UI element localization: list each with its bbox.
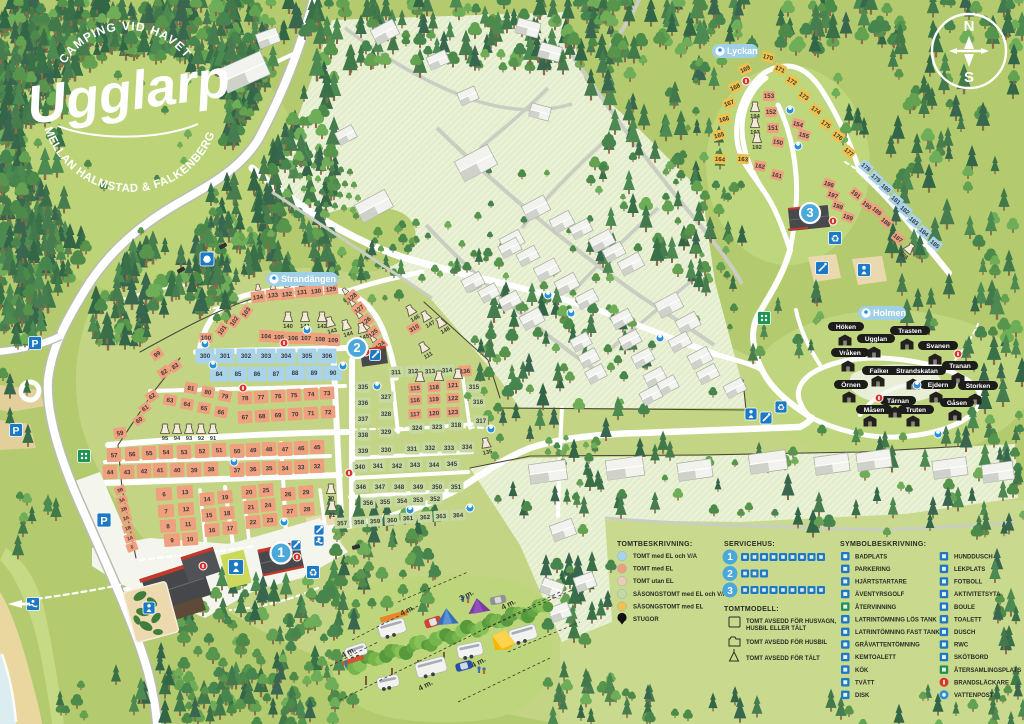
svg-text:♻: ♻ — [831, 234, 840, 245]
svg-text:94: 94 — [174, 436, 181, 442]
svg-text:76: 76 — [274, 393, 282, 400]
svg-text:35: 35 — [266, 465, 274, 472]
svg-text:33: 33 — [298, 464, 306, 471]
svg-text:21: 21 — [247, 504, 255, 511]
svg-text:317: 317 — [476, 418, 487, 425]
svg-text:53: 53 — [181, 449, 189, 456]
svg-text:122: 122 — [448, 395, 459, 403]
svg-text:♻: ♻ — [309, 568, 318, 579]
svg-text:10: 10 — [186, 536, 194, 543]
svg-text:23: 23 — [266, 517, 274, 524]
svg-text:Vråken: Vråken — [839, 349, 861, 357]
svg-text:78: 78 — [241, 395, 249, 402]
svg-text:329: 329 — [381, 429, 392, 436]
svg-text:49: 49 — [250, 447, 258, 454]
svg-text:343: 343 — [410, 462, 421, 469]
svg-text:338: 338 — [358, 432, 369, 439]
svg-text:TOALETT: TOALETT — [954, 617, 982, 623]
svg-text:86: 86 — [254, 371, 261, 378]
svg-text:358: 358 — [354, 519, 365, 527]
svg-text:54: 54 — [163, 449, 171, 456]
svg-text:331: 331 — [407, 446, 418, 453]
svg-text:119: 119 — [429, 396, 440, 404]
svg-text:Falken: Falken — [870, 368, 891, 375]
svg-text:2: 2 — [353, 340, 360, 355]
svg-text:AKTIVITETSYTA: AKTIVITETSYTA — [954, 592, 1001, 598]
svg-text:BOULE: BOULE — [954, 605, 975, 611]
svg-text:3: 3 — [806, 205, 813, 220]
svg-text:45: 45 — [314, 444, 322, 451]
svg-text:14: 14 — [203, 496, 211, 503]
svg-text:360: 360 — [387, 517, 398, 525]
svg-text:Tärnan: Tärnan — [887, 398, 909, 405]
svg-text:1: 1 — [277, 544, 285, 560]
svg-text:56: 56 — [129, 451, 137, 458]
svg-text:323: 323 — [432, 424, 443, 431]
svg-text:332: 332 — [425, 445, 436, 452]
svg-text:Trasten: Trasten — [898, 328, 921, 335]
svg-text:70: 70 — [291, 411, 299, 418]
svg-text:346: 346 — [356, 484, 367, 491]
svg-text:342: 342 — [392, 463, 403, 470]
svg-text:TOMTBESKRIVNING:: TOMTBESKRIVNING: — [617, 541, 692, 548]
svg-text:95: 95 — [162, 436, 169, 442]
svg-text:2: 2 — [727, 569, 733, 580]
svg-text:16: 16 — [208, 527, 216, 534]
svg-text:P: P — [100, 516, 108, 528]
svg-text:73: 73 — [323, 390, 331, 397]
svg-text:301: 301 — [220, 353, 231, 360]
svg-text:26: 26 — [284, 491, 292, 498]
svg-text:DISK: DISK — [855, 693, 870, 699]
svg-text:FOTBOLL: FOTBOLL — [954, 580, 983, 586]
svg-text:335: 335 — [358, 384, 369, 391]
svg-text:115: 115 — [410, 385, 421, 393]
svg-text:142: 142 — [317, 324, 327, 330]
svg-text:152: 152 — [766, 109, 777, 116]
svg-text:KEMTOALETT: KEMTOALETT — [855, 655, 896, 661]
svg-text:330: 330 — [381, 447, 392, 454]
svg-text:46: 46 — [298, 445, 306, 452]
svg-text:♻: ♻ — [777, 403, 785, 413]
svg-text:118: 118 — [429, 384, 440, 392]
svg-text:355: 355 — [380, 499, 391, 506]
svg-text:57: 57 — [111, 452, 119, 459]
svg-text:P: P — [32, 339, 39, 350]
svg-text:LATRINTÖMNING FAST TANK: LATRINTÖMNING FAST TANK — [855, 629, 940, 636]
svg-text:337: 337 — [358, 416, 369, 423]
svg-text:345: 345 — [447, 461, 458, 468]
svg-text:34: 34 — [282, 465, 290, 472]
svg-text:LEKPLATS: LEKPLATS — [954, 567, 985, 573]
svg-text:BRANDSLÄCKARE: BRANDSLÄCKARE — [954, 679, 1009, 686]
svg-text:13: 13 — [181, 489, 189, 496]
svg-text:306: 306 — [322, 353, 333, 360]
svg-text:ÅTERSAMLINGSPLATS: ÅTERSAMLINGSPLATS — [954, 667, 1021, 674]
svg-text:41: 41 — [157, 467, 165, 474]
svg-text:SÄSONGSTOMT med EL och V/A: SÄSONGSTOMT med EL och V/A — [633, 591, 728, 598]
svg-text:12: 12 — [182, 506, 190, 513]
svg-text:28: 28 — [303, 506, 311, 513]
svg-text:Tranan: Tranan — [949, 363, 971, 370]
svg-text:47: 47 — [282, 446, 290, 453]
svg-text:305: 305 — [302, 353, 313, 360]
svg-text:106: 106 — [288, 335, 299, 342]
svg-text:N: N — [964, 18, 975, 35]
svg-text:107: 107 — [301, 335, 312, 342]
svg-text:20: 20 — [245, 489, 253, 496]
svg-text:29: 29 — [302, 489, 310, 496]
svg-text:164: 164 — [715, 156, 726, 164]
svg-text:SÄSONGSTOMT med EL: SÄSONGSTOMT med EL — [633, 603, 704, 610]
svg-text:74: 74 — [307, 391, 315, 398]
svg-text:88: 88 — [292, 370, 299, 377]
svg-text:93: 93 — [186, 436, 193, 442]
svg-text:87: 87 — [273, 371, 280, 378]
svg-text:48: 48 — [266, 446, 274, 453]
svg-text:354: 354 — [397, 498, 408, 505]
svg-text:32: 32 — [314, 463, 322, 470]
svg-text:Strandskatan: Strandskatan — [896, 368, 938, 375]
svg-text:TOMT utan EL: TOMT utan EL — [633, 579, 674, 585]
svg-text:313: 313 — [425, 368, 436, 376]
svg-text:303: 303 — [261, 353, 272, 360]
svg-text:344: 344 — [429, 462, 440, 469]
svg-text:SKÖTBORD: SKÖTBORD — [954, 654, 989, 661]
svg-text:341: 341 — [373, 463, 384, 470]
svg-text:S: S — [964, 69, 974, 86]
svg-text:90: 90 — [330, 370, 337, 377]
svg-text:19: 19 — [221, 494, 229, 501]
svg-text:92: 92 — [198, 436, 204, 442]
svg-text:LATRINTÖMNING LÖS TANK: LATRINTÖMNING LÖS TANK — [855, 616, 937, 623]
svg-text:Truten: Truten — [906, 407, 926, 414]
svg-text:89: 89 — [311, 370, 318, 377]
svg-text:TOMT AVSEDD FÖR TÄLT: TOMT AVSEDD FÖR TÄLT — [746, 655, 820, 662]
svg-text:327: 327 — [381, 394, 392, 401]
svg-text:39: 39 — [191, 467, 199, 474]
svg-text:Örnen: Örnen — [841, 380, 860, 389]
svg-text:85: 85 — [235, 371, 242, 378]
svg-text:108: 108 — [315, 336, 326, 343]
svg-text:TOMT AVSEDD FÖR HUSBIL: TOMT AVSEDD FÖR HUSBIL — [746, 639, 828, 646]
svg-text:192: 192 — [752, 145, 762, 151]
svg-text:37: 37 — [234, 467, 242, 474]
svg-text:340: 340 — [355, 464, 366, 471]
svg-text:22: 22 — [249, 519, 257, 526]
svg-text:353: 353 — [413, 497, 424, 504]
svg-text:362: 362 — [420, 514, 431, 522]
svg-text:151: 151 — [768, 125, 779, 132]
svg-text:356: 356 — [363, 500, 374, 507]
svg-text:BADPLATS: BADPLATS — [855, 554, 887, 560]
svg-text:300: 300 — [200, 353, 211, 360]
svg-text:STUGOR: STUGOR — [633, 617, 659, 623]
svg-text:DUSCH: DUSCH — [954, 630, 975, 636]
svg-text:72: 72 — [324, 409, 332, 416]
svg-text:Strandängen: Strandängen — [281, 274, 336, 284]
svg-text:Svanen: Svanen — [926, 343, 949, 350]
svg-text:109: 109 — [328, 337, 339, 344]
svg-text:69: 69 — [274, 412, 282, 419]
svg-text:TOMT med EL och V/A: TOMT med EL och V/A — [633, 554, 698, 560]
svg-text:44: 44 — [107, 469, 115, 476]
svg-text:42: 42 — [141, 468, 149, 475]
svg-text:Höken: Höken — [836, 324, 856, 331]
svg-text:91: 91 — [210, 436, 217, 442]
svg-text:311: 311 — [391, 369, 402, 377]
svg-text:Gåsen: Gåsen — [947, 399, 967, 407]
svg-text:51: 51 — [216, 447, 224, 454]
svg-text:3: 3 — [727, 586, 733, 597]
svg-text:15: 15 — [205, 512, 213, 519]
svg-text:352: 352 — [430, 496, 441, 503]
svg-text:153: 153 — [764, 93, 775, 100]
svg-text:43: 43 — [124, 469, 132, 476]
svg-text:359: 359 — [370, 518, 381, 526]
svg-text:SERVICEHUS:: SERVICEHUS: — [724, 541, 775, 548]
svg-text:104: 104 — [261, 333, 272, 340]
svg-text:120: 120 — [429, 410, 440, 418]
svg-text:77: 77 — [257, 394, 265, 401]
svg-text:71: 71 — [307, 410, 315, 417]
svg-text:TOMT med EL: TOMT med EL — [633, 567, 674, 573]
svg-text:Ugglan: Ugglan — [865, 336, 887, 343]
svg-text:ÅTERVINNING: ÅTERVINNING — [855, 604, 897, 611]
svg-text:18: 18 — [223, 510, 231, 517]
svg-text:55: 55 — [146, 450, 154, 457]
svg-text:351: 351 — [451, 484, 462, 491]
svg-text:75: 75 — [290, 392, 298, 399]
svg-text:315: 315 — [469, 384, 480, 391]
svg-text:68: 68 — [258, 413, 266, 420]
svg-text:132: 132 — [282, 291, 293, 299]
svg-text:67: 67 — [241, 414, 249, 421]
svg-text:11: 11 — [185, 521, 193, 528]
svg-text:363: 363 — [436, 513, 447, 521]
svg-text:304: 304 — [281, 353, 292, 360]
svg-text:361: 361 — [403, 515, 414, 523]
svg-text:HUNDDUSCH: HUNDDUSCH — [954, 554, 993, 560]
svg-text:Ejdern: Ejdern — [928, 382, 949, 389]
svg-text:339: 339 — [358, 448, 369, 455]
svg-text:40: 40 — [174, 467, 182, 474]
svg-text:364: 364 — [453, 512, 464, 520]
svg-text:129: 129 — [326, 286, 337, 294]
svg-text:36: 36 — [250, 466, 258, 473]
svg-text:130: 130 — [311, 288, 322, 296]
svg-text:133: 133 — [268, 292, 279, 300]
svg-text:Lyckan: Lyckan — [727, 46, 758, 56]
svg-text:Storken: Storken — [966, 383, 991, 390]
svg-text:116: 116 — [410, 397, 421, 405]
svg-text:TVÄTT: TVÄTT — [855, 679, 875, 686]
svg-text:SYMBOLBESKRIVNING:: SYMBOLBESKRIVNING: — [840, 541, 926, 548]
svg-text:TOMT AVSEDD FÖR HUSVAGN,: TOMT AVSEDD FÖR HUSVAGN, — [746, 618, 836, 625]
svg-text:318: 318 — [451, 422, 462, 429]
svg-text:163: 163 — [738, 156, 749, 164]
svg-text:38: 38 — [208, 466, 216, 473]
svg-text:52: 52 — [199, 448, 207, 455]
svg-text:84: 84 — [216, 371, 223, 378]
svg-text:P: P — [13, 426, 20, 437]
svg-text:24: 24 — [264, 502, 272, 509]
svg-text:131: 131 — [297, 289, 308, 297]
svg-text:123: 123 — [448, 409, 459, 417]
svg-text:HUSBIL ELLER TÄLT: HUSBIL ELLER TÄLT — [746, 625, 806, 632]
svg-text:328: 328 — [381, 411, 392, 418]
svg-text:ÄVENTYRSGOLF: ÄVENTYRSGOLF — [855, 591, 905, 598]
svg-text:50: 50 — [234, 448, 242, 455]
svg-text:PARKERING: PARKERING — [855, 567, 891, 573]
svg-text:302: 302 — [241, 353, 252, 360]
svg-text:336: 336 — [358, 400, 369, 407]
svg-text:333: 333 — [444, 445, 455, 452]
svg-text:RWC: RWC — [954, 643, 969, 649]
svg-text:347: 347 — [375, 484, 386, 491]
svg-text:25: 25 — [262, 487, 270, 494]
svg-text:350: 350 — [432, 484, 443, 491]
svg-text:Måsen: Måsen — [864, 406, 885, 414]
svg-text:324: 324 — [412, 425, 423, 432]
svg-text:GRÅVATTENTÖMNING: GRÅVATTENTÖMNING — [855, 642, 920, 649]
svg-text:117: 117 — [410, 411, 421, 419]
svg-text:349: 349 — [413, 484, 424, 491]
svg-text:VATTENPOST: VATTENPOST — [954, 693, 994, 699]
svg-text:316: 316 — [473, 399, 484, 406]
svg-text:334: 334 — [462, 444, 473, 451]
svg-text:1: 1 — [727, 552, 733, 563]
svg-text:HJÄRTSTARTARE: HJÄRTSTARTARE — [855, 579, 907, 586]
svg-text:140: 140 — [283, 324, 293, 330]
svg-text:121: 121 — [448, 382, 459, 390]
svg-text:348: 348 — [394, 484, 405, 491]
svg-text:Holmen: Holmen — [873, 308, 906, 318]
svg-text:314: 314 — [442, 367, 453, 375]
svg-text:27: 27 — [286, 508, 294, 515]
svg-text:TOMTMODELL:: TOMTMODELL: — [724, 606, 779, 613]
svg-text:KÖK: KÖK — [855, 667, 869, 674]
svg-text:17: 17 — [226, 525, 234, 532]
svg-text:357: 357 — [337, 520, 348, 528]
svg-text:134: 134 — [253, 294, 264, 302]
